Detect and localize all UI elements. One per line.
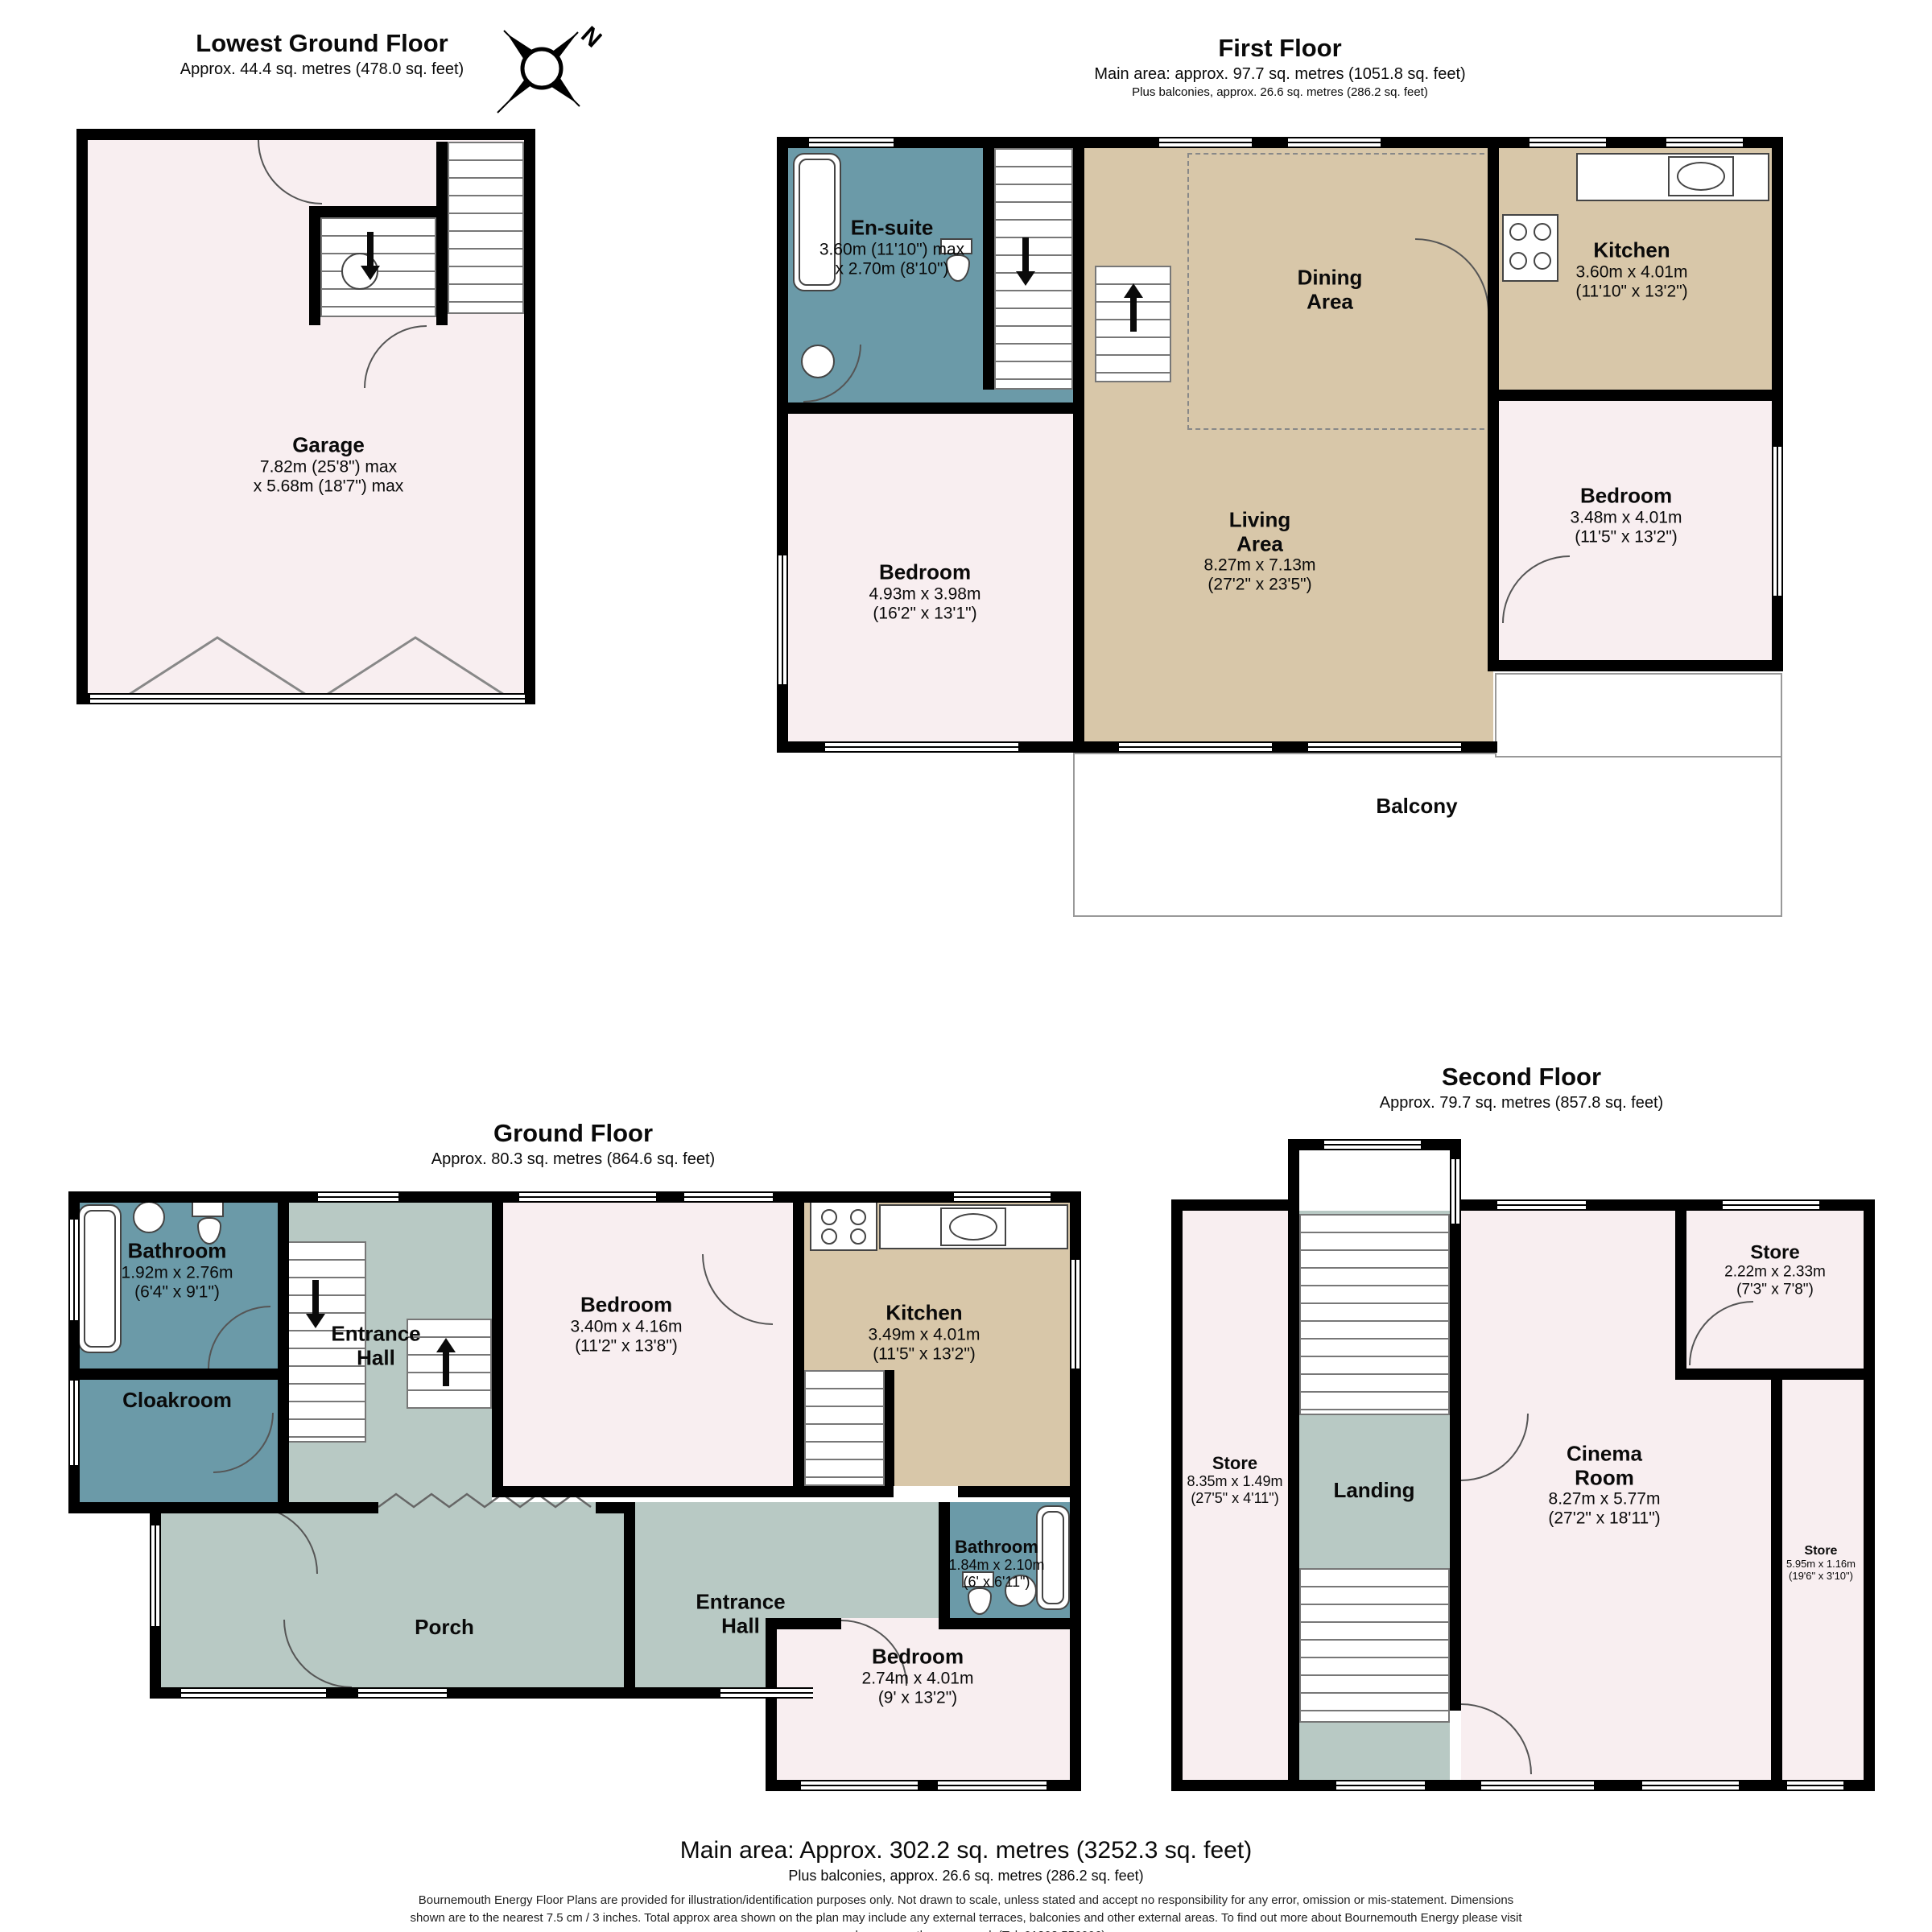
floor-title: First Floor [958,34,1602,63]
disclaimer-line: shown are to the nearest 7.5 cm / 3 inch… [0,1909,1932,1927]
floor-subtitle: Main area: approx. 97.7 sq. metres (1051… [958,65,1602,84]
disclaimer-line: www.bournemouthenergy.co.uk (Tel: 01202 … [0,1927,1932,1932]
garage-label: Garage 7.82m (25'8") max x 5.68m (18'7")… [254,433,404,496]
window [1336,1780,1425,1791]
window [1642,1780,1739,1791]
room-balcony [1495,673,1782,758]
wall [76,129,535,140]
floor-title: Lowest Ground Floor [80,29,563,58]
wall [1499,390,1783,401]
lowest-ground-header: Lowest Ground Floor Approx. 44.4 sq. met… [80,29,563,79]
stairs [804,1370,885,1486]
window [318,1191,398,1203]
toilet-icon [192,1201,224,1217]
landing-label: Landing [1333,1479,1414,1503]
window [954,1191,1051,1203]
balcony-label: Balcony [1376,795,1457,819]
wall [624,1502,635,1699]
kitchen-label: Kitchen 3.60m x 4.01m (11'10" x 13'2") [1575,238,1687,301]
wall [1675,1211,1686,1368]
window [181,1687,326,1699]
bedroom-right-label: Bedroom 3.48m x 4.01m (11'5" x 13'2") [1571,484,1682,547]
wall [1864,1199,1875,1791]
ground-floor-header: Ground Floor Approx. 80.3 sq. metres (86… [332,1119,815,1169]
window [1450,1159,1461,1224]
total-area-text: Main area: Approx. 302.2 sq. metres (325… [0,1837,1932,1864]
window [519,1191,656,1203]
ensuite-label: En-suite 3.60m (11'10") max x 2.70m (8'1… [819,216,964,279]
window [68,1220,80,1320]
window [801,1780,918,1791]
kitchen-label: Kitchen 3.49m x 4.01m (11'5" x 13'2") [869,1301,980,1364]
window [358,1687,447,1699]
room-balcony [1073,753,1782,917]
living-area-label: Living Area 8.27m x 7.13m (27'2" x 23'5"… [1204,508,1316,594]
wall [492,1486,793,1497]
wall [1171,1199,1183,1791]
store-left-label: Store 8.35m x 1.49m (27'5" x 4'11") [1187,1453,1282,1506]
stairs [1299,1214,1450,1415]
floor-subtitle2: Plus balconies, approx. 26.6 sq. metres … [958,85,1602,99]
floor-subtitle: Approx. 80.3 sq. metres (864.6 sq. feet) [332,1150,815,1169]
room-porch [161,1502,624,1699]
window [1772,447,1783,596]
window [1159,137,1252,148]
hob-icon [1502,214,1558,282]
stairs-arrow-down-icon [361,232,380,280]
window [1787,1780,1843,1791]
disclaimer-line: Bournemouth Energy Floor Plans are provi… [0,1892,1932,1909]
disclaimer: Bournemouth Energy Floor Plans are provi… [0,1892,1932,1932]
stairs-arrow-up-icon [1124,283,1143,332]
cloakroom-label: Cloakroom [122,1389,232,1413]
wall [309,206,320,325]
wall [436,142,448,325]
wall [1675,1368,1875,1380]
window [809,137,894,148]
bath-icon [78,1204,122,1353]
wall [1450,1260,1461,1711]
wall [777,137,1783,148]
garage-door-opening [90,693,525,704]
hob-icon [810,1201,877,1251]
window [1324,1139,1421,1150]
wall [76,129,88,704]
window [1119,741,1272,753]
window [1481,1780,1594,1791]
wall [1488,137,1499,671]
first-floor-header: First Floor Main area: approx. 97.7 sq. … [958,34,1602,99]
sink-icon [133,1201,165,1233]
bathroom-label: Bathroom 1.92m x 2.76m (6'4" x 9'1") [122,1239,233,1302]
sink-icon [940,1207,1006,1246]
wall [492,1203,503,1486]
porch-label: Porch [415,1616,474,1640]
wall [68,1502,290,1513]
wall [793,1203,804,1486]
window [1529,137,1606,148]
floor-title: Ground Floor [332,1119,815,1148]
wall [1771,1380,1782,1780]
window [825,741,1018,753]
wall [309,206,448,217]
floorplan-canvas: Lowest Ground Floor Approx. 44.4 sq. met… [0,0,1932,1932]
wall [290,1502,378,1513]
sink-icon [1668,156,1734,196]
wall [1288,1139,1299,1780]
wall [788,402,1073,414]
window [1070,1260,1081,1368]
wall [958,1486,1081,1497]
stairs [448,142,524,314]
store-top-label: Store 2.22m x 2.33m (7'3" x 7'8") [1724,1242,1826,1299]
compass-north-label: N [576,22,602,53]
window [938,1780,1046,1791]
window [1497,1199,1586,1211]
bedroom-lower-label: Bedroom 2.74m x 4.01m (9' x 13'2") [862,1645,974,1707]
bathroom-lower-label: Bathroom 1.84m x 2.10m (6' x 6'11") [948,1537,1044,1590]
wall [939,1618,1081,1629]
wall [1493,660,1783,671]
entrance-hall-lower-label: Entrance Hall [696,1590,785,1637]
entrance-hall-upper-label: Entrance Hall [331,1322,420,1369]
floor-title: Second Floor [1280,1063,1763,1092]
bedroom-left-label: Bedroom 4.93m x 3.98m (16'2" x 13'1") [869,560,981,623]
window [1308,741,1461,753]
cinema-room-label: Cinema Room 8.27m x 5.77m (27'2" x 18'11… [1548,1442,1660,1528]
wall [793,1486,894,1497]
floor-subtitle: Approx. 79.7 sq. metres (857.8 sq. feet) [1280,1094,1763,1113]
wall [885,1370,894,1486]
window [684,1191,773,1203]
window [777,555,788,684]
wall [524,129,535,704]
stairs-arrow-down-icon [306,1280,325,1328]
wall [80,1368,278,1380]
total-balconies-text: Plus balconies, approx. 26.6 sq. metres … [0,1868,1932,1885]
store-right-label: Store 5.95m x 1.16m (19'6" x 3'10") [1786,1544,1856,1583]
window [720,1687,813,1699]
stairs-arrow-down-icon [1016,237,1035,286]
window [68,1381,80,1465]
floor-subtitle: Approx. 44.4 sq. metres (478.0 sq. feet) [80,60,563,79]
window [1666,137,1743,148]
window [1723,1199,1819,1211]
dining-area-label: Dining Area [1298,266,1363,313]
bedroom-label: Bedroom 3.40m x 4.16m (11'2" x 13'8") [571,1293,683,1356]
window [1288,137,1381,148]
wall [983,148,994,390]
stairs-arrow-up-icon [436,1338,456,1386]
wall [766,1618,777,1791]
second-floor-header: Second Floor Approx. 79.7 sq. metres (85… [1280,1063,1763,1113]
wall [1171,1199,1288,1211]
stairs [1299,1568,1450,1723]
wall [1073,137,1084,753]
window [150,1525,161,1626]
wall [278,1191,289,1502]
